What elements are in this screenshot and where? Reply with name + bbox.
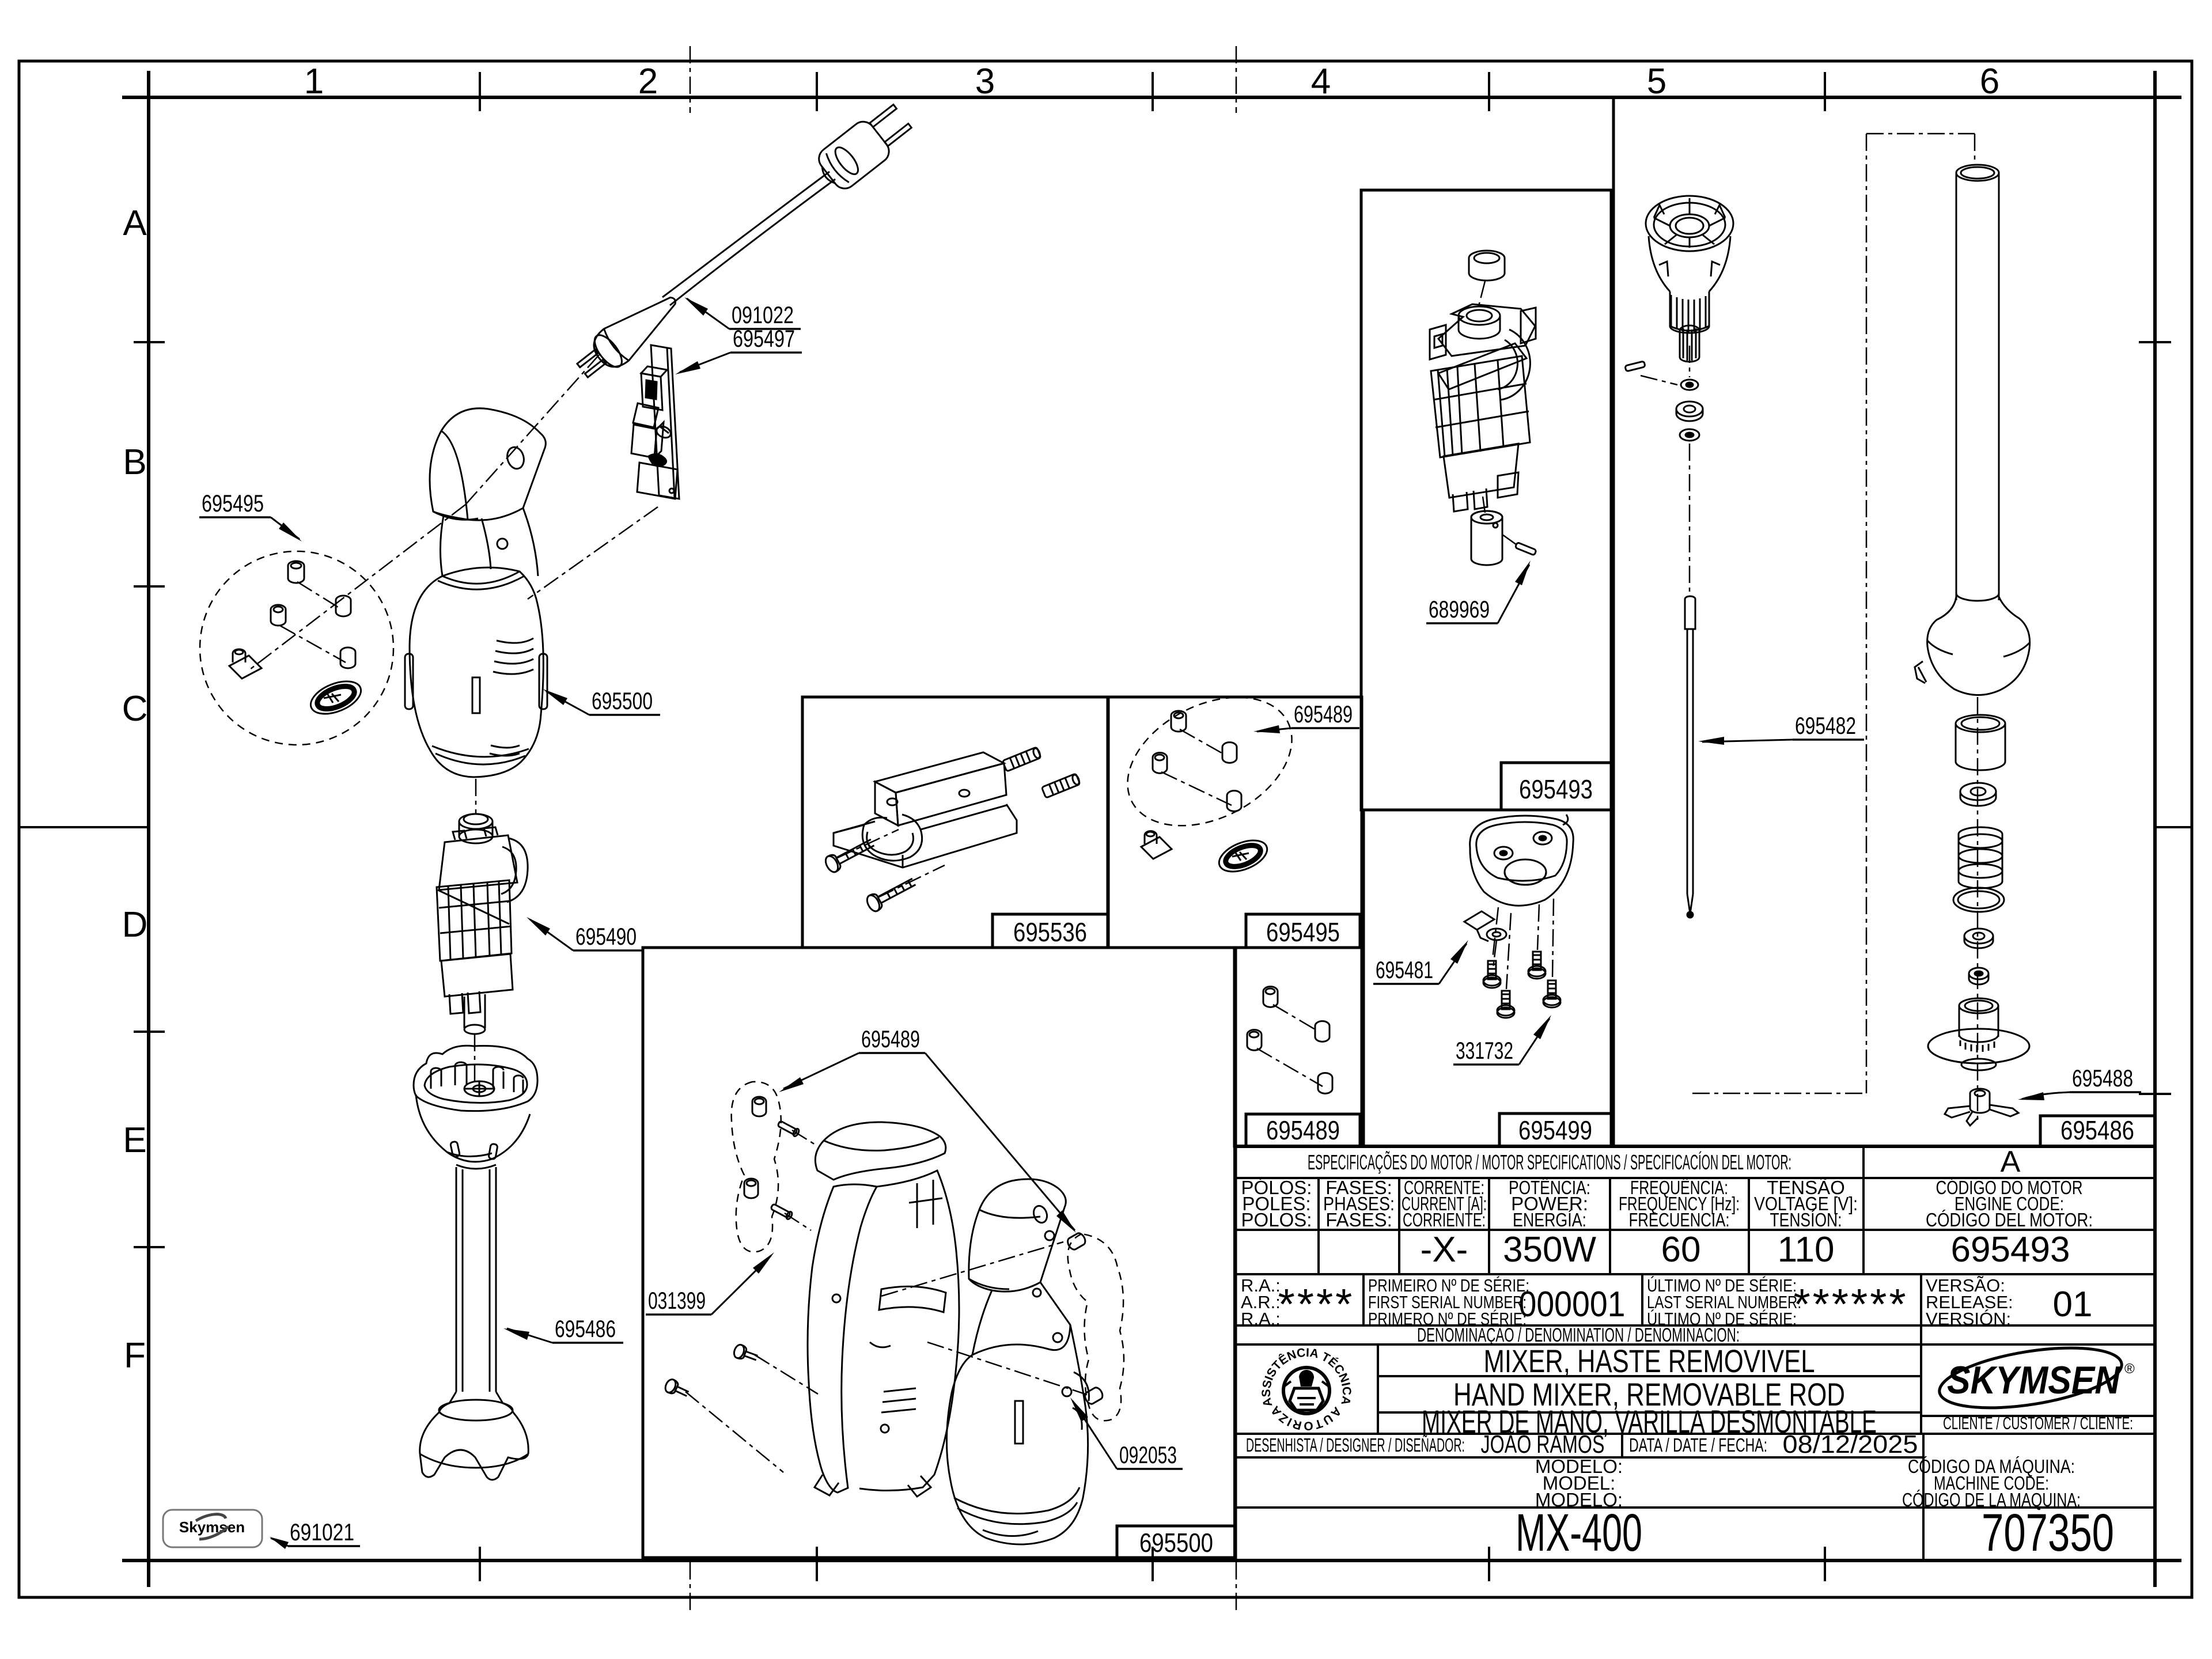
svg-text:2: 2 [638,62,658,101]
svg-text:331732: 331732 [1456,1037,1513,1064]
svg-text:695500: 695500 [1139,1528,1213,1558]
svg-text:****: **** [1278,1280,1355,1328]
svg-text:VERSIÓN:: VERSIÓN: [1926,1309,2011,1329]
svg-text:695486: 695486 [2061,1115,2134,1145]
svg-text:689969: 689969 [1429,596,1490,623]
svg-text:CÓDIGO DEL MOTOR:: CÓDIGO DEL MOTOR: [1926,1209,2093,1230]
svg-text:ENERGÍA:: ENERGÍA: [1513,1209,1586,1230]
svg-text:ESPECIFICAÇÕES DO MOTOR / MOTO: ESPECIFICAÇÕES DO MOTOR / MOTOR SPECIFIC… [1308,1150,1791,1174]
svg-text:695536: 695536 [1013,917,1087,947]
svg-text:695490: 695490 [575,923,637,950]
svg-text:092053: 092053 [1119,1441,1177,1468]
svg-text:695482: 695482 [1795,712,1856,739]
svg-text:FASES:: FASES: [1325,1209,1392,1230]
svg-text:B: B [123,442,146,482]
svg-text:695497: 695497 [733,325,795,352]
svg-text:F: F [124,1336,146,1376]
svg-text:695488: 695488 [2072,1065,2133,1092]
svg-text:695489: 695489 [861,1025,920,1052]
svg-text:695486: 695486 [555,1315,616,1342]
svg-text:CLIENTE / CUSTOMER / CLIENTE:: CLIENTE / CUSTOMER / CLIENTE: [1943,1413,2133,1433]
svg-text:695500: 695500 [592,687,653,714]
svg-text:******: ****** [1793,1280,1908,1328]
svg-text:DATA / DATE / FECHA:: DATA / DATE / FECHA: [1629,1434,1767,1456]
svg-text:MIXER, HASTE REMOVIVEL: MIXER, HASTE REMOVIVEL [1484,1343,1815,1379]
svg-text:®: ® [2124,1361,2135,1377]
svg-text:08/12/2025: 08/12/2025 [1783,1430,1918,1459]
svg-text:695489: 695489 [1294,700,1353,728]
svg-text:695493: 695493 [1951,1230,2070,1270]
svg-text:691021: 691021 [290,1518,354,1546]
svg-text:091022: 091022 [732,301,794,328]
svg-text:4: 4 [1311,62,1331,101]
svg-text:E: E [123,1120,146,1160]
svg-text:JOÃO RAMOS: JOÃO RAMOS [1481,1430,1605,1459]
svg-text:695493: 695493 [1519,774,1593,804]
svg-text:000001: 000001 [1519,1285,1626,1324]
svg-text:695489: 695489 [1266,1115,1340,1145]
svg-text:695495: 695495 [202,490,264,517]
svg-text:110: 110 [1778,1230,1835,1270]
svg-text:60: 60 [1661,1230,1701,1270]
svg-text:A: A [123,203,147,243]
svg-text:A: A [2001,1145,2021,1179]
svg-text:350W: 350W [1503,1230,1596,1270]
svg-text:695495: 695495 [1266,917,1340,947]
svg-text:5: 5 [1647,62,1666,101]
svg-text:DESENHISTA / DESIGNER / DISEÑA: DESENHISTA / DESIGNER / DISEÑADOR: [1246,1434,1465,1456]
svg-text:695481: 695481 [1376,956,1433,983]
svg-text:POLOS:: POLOS: [1241,1209,1312,1230]
svg-text:707350: 707350 [1982,1503,2114,1562]
svg-text:SKYMSEN: SKYMSEN [1947,1358,2121,1402]
svg-text:D: D [122,905,148,945]
svg-text:R.A.:: R.A.: [1241,1309,1281,1329]
svg-text:MX-400: MX-400 [1516,1503,1642,1562]
svg-text:6: 6 [1980,62,1999,101]
svg-text:695499: 695499 [1518,1115,1592,1145]
svg-text:3: 3 [975,62,995,101]
svg-text:031399: 031399 [648,1287,706,1314]
svg-text:CORRIENTE:: CORRIENTE: [1403,1209,1486,1230]
svg-text:Skymsen: Skymsen [179,1518,245,1536]
svg-text:FRECUENCIA:: FRECUENCIA: [1629,1209,1730,1230]
svg-text:1: 1 [304,62,324,101]
svg-text:01: 01 [2053,1285,2093,1324]
svg-text:TENSÍON:: TENSÍON: [1770,1209,1842,1230]
svg-text:-X-: -X- [1421,1230,1468,1270]
svg-text:C: C [122,689,148,729]
